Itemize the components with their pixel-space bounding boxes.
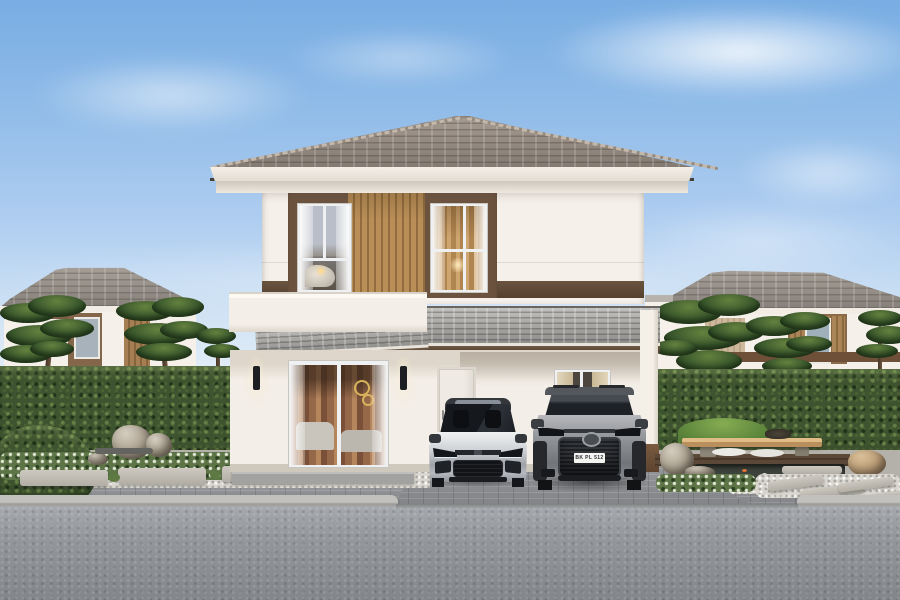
walkway-slab (20, 470, 108, 486)
bonsai-on-bench (765, 429, 791, 439)
window-mullion (433, 249, 485, 252)
carport-roof-tiles (420, 306, 660, 346)
side-mirror (429, 434, 441, 443)
sliding-glass-door (288, 360, 389, 468)
door-mullion (337, 363, 341, 465)
wood-slat-panel (348, 186, 425, 298)
windshield (545, 395, 634, 417)
fascia (210, 167, 694, 181)
car-roof (545, 387, 634, 395)
wall-sconce (400, 366, 407, 390)
brand-emblem (474, 450, 482, 455)
koi-fish (742, 469, 747, 472)
walkway-slab (118, 468, 206, 484)
lower-grille (453, 460, 503, 477)
driveway-apron-edge (396, 504, 798, 509)
lamp-glow (319, 269, 323, 273)
fog-light-insert (541, 469, 555, 477)
rock (848, 450, 886, 476)
garden-bench (682, 438, 822, 447)
window-mullion (300, 258, 349, 261)
bench-cushion (750, 449, 784, 457)
wall-sconce (253, 366, 260, 390)
car-seat (485, 410, 501, 428)
parapet (229, 292, 427, 332)
upper-right-window (430, 203, 488, 293)
fog-light-insert (624, 469, 638, 477)
moss-tuft (108, 473, 120, 482)
roof-rail (553, 385, 579, 388)
curtain (336, 206, 349, 290)
front-lip (558, 475, 621, 481)
brand-emblem (582, 432, 601, 447)
window-mullion (323, 206, 326, 258)
roof-rail (599, 385, 625, 388)
curtain (433, 206, 445, 290)
front-lip (449, 477, 507, 482)
side-mirror (515, 434, 527, 443)
tire (432, 478, 444, 487)
license-plate: BK PL 512 (574, 453, 605, 463)
bench-cushion (712, 448, 746, 456)
stone-edging (95, 448, 153, 454)
rock (88, 453, 108, 465)
car-seat (453, 410, 469, 428)
tire (627, 480, 641, 490)
road (0, 506, 900, 600)
pond-slab (782, 466, 842, 474)
fog-light-insert (435, 460, 451, 474)
scene: BK PL 512 (0, 0, 900, 600)
soffit (216, 181, 688, 193)
curtain (474, 206, 485, 290)
cloud (735, 138, 900, 208)
sedan-car (429, 398, 527, 487)
curtain (372, 365, 386, 465)
suv-car: BK PL 512 (533, 385, 646, 490)
flower-bed (656, 474, 756, 492)
pine-tree (852, 308, 900, 378)
upper-left-window (297, 203, 352, 293)
cloud (285, 28, 515, 88)
tire (538, 480, 552, 490)
carport-roof (420, 306, 660, 353)
tire (512, 478, 524, 487)
fog-light-insert (505, 460, 521, 474)
bench-support-stone (795, 447, 809, 456)
window-mullion (463, 206, 466, 290)
roof-flashing (420, 306, 660, 308)
curtain (291, 365, 305, 465)
interior-glow (448, 258, 468, 272)
